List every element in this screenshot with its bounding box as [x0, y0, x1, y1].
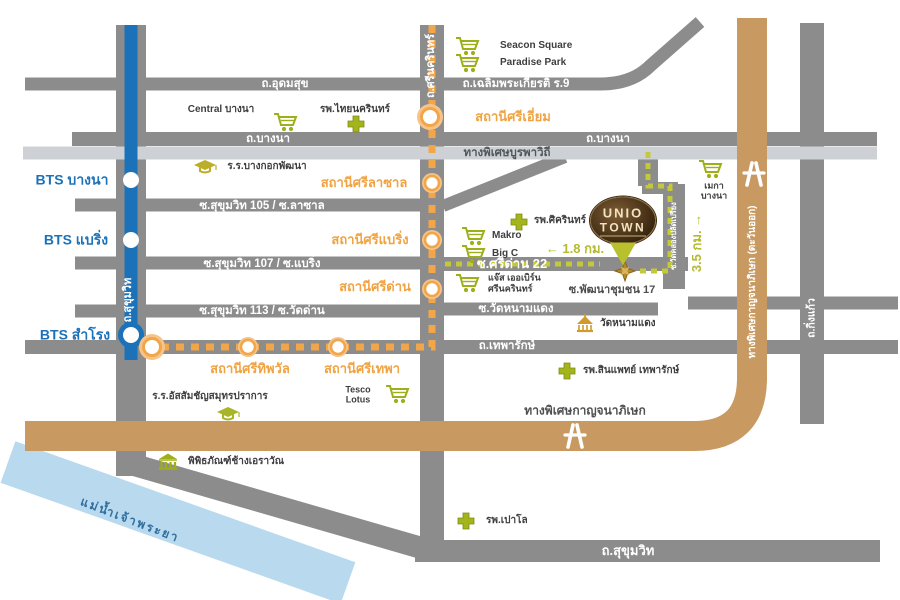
poi-label-assumption: ร.ร.อัสสัมชัญสมุทรปราการ: [152, 392, 267, 403]
road-label-kanchanaphisek: ทางพิเศษกาญจนาภิเษก: [524, 405, 645, 418]
poi-label-mega-line2: บางนา: [701, 191, 727, 200]
road-label-watnamdaeng: ซ.วัดหนามแดง: [479, 303, 554, 315]
road-label-burapha: ทางพิเศษบูรพาวิถี: [464, 147, 551, 159]
project-logo-badge: UNIO TOWN: [590, 197, 656, 245]
poi-label-tesco-line2: Lotus: [346, 395, 371, 404]
poi-label-bigc: Big C: [492, 249, 518, 260]
road-diagonal-lasalle: [443, 157, 565, 206]
road-label-udomsuk: ถ.อุดมสุข: [262, 78, 309, 90]
station-label-srithepha: สถานีศรีเทพา: [324, 362, 400, 376]
road-label-sukhumvit-south: ถ.สุขุมวิท: [602, 544, 655, 558]
station-label-srithipawan: สถานีศรีทิพวัล: [210, 362, 290, 376]
school-cap-icon-assumption: [217, 407, 239, 420]
station-label-sribearing: สถานีศรีแบริ่ง: [331, 233, 408, 247]
bts-station-bearing: [123, 232, 139, 248]
hospital-cross-icon-thainakarin: [348, 116, 364, 132]
station-label-sridan: สถานีศรีด่าน: [339, 280, 411, 294]
project-pin: [610, 243, 636, 266]
poi-label-central: Central บางนา: [188, 105, 255, 116]
poi-label-erawan: พิพิธภัณฑ์ช้างเอราวัณ: [188, 457, 284, 468]
road-label-bangna-east: ถ.บางนา: [586, 133, 630, 145]
road-label-chalermprakiat: ถ.เฉลิมพระเกียรติ ร.9: [463, 78, 570, 90]
temple-icon-watnamdaeng: [577, 314, 593, 331]
road-label-srinakarin: ถ.ศรีนครินทร์: [426, 34, 438, 98]
road-label-sukhumvit107: ซ.สุขุมวิท 107 / ซ.แบริ่ง: [204, 258, 321, 270]
shopping-cart-icon-central: [274, 114, 296, 131]
bts-station-samrong: [123, 327, 139, 343]
shopping-cart-icon-paradise: [456, 55, 478, 72]
project-logo: UNIO TOWN: [590, 197, 656, 266]
road-label-watkhlongpladpriang: ซ.วัดคลองปลัดเปรียง: [670, 202, 678, 270]
bts-station-bangna: [123, 172, 139, 188]
bts-label-samrong: BTS สำโรง: [40, 328, 110, 343]
bts-label-bearing: BTS แบริ่ง: [44, 233, 108, 248]
project-logo-line2: TOWN: [600, 220, 646, 236]
shopping-cart-icon-seacon: [456, 38, 478, 55]
poi-label-jas-line2: ศรีนครินทร์: [488, 284, 532, 293]
poi-label-makro: Makro: [492, 231, 521, 242]
road-network: [0, 0, 900, 600]
road-label-sukhumvit113: ซ.สุขุมวิท 113 / ซ.วัดด่าน: [199, 305, 325, 317]
bts-label-bangna: BTS บางนา: [36, 173, 109, 188]
road-label-kingkaew: ถ.กิ่งแก้ว: [806, 298, 817, 338]
hospital-cross-icon-paolo: [458, 513, 474, 529]
station-label-sriiam: สถานีศรีเอี่ยม: [475, 110, 551, 124]
poi-label-watnamdaeng: วัดหนามแดง: [600, 319, 656, 330]
map-canvas: ถ.อุดมสุข ถ.เฉลิมพระเกียรติ ร.9 ถ.บางนา …: [0, 0, 900, 600]
project-logo-line1: UNIO: [603, 205, 644, 220]
hospital-cross-icon-sinphaet: [559, 363, 575, 379]
poi-label-sikarin: รพ.ศิครินทร์: [534, 216, 586, 227]
poi-label-paolo: รพ.เปาโล: [486, 516, 528, 527]
shopping-cart-icon-makro: [462, 228, 484, 245]
poi-label-seacon: Seacon Square: [500, 41, 572, 52]
hospital-cross-icon-sikarin: [511, 214, 527, 230]
road-label-sukhumvit105: ซ.สุขุมวิท 105 / ซ.ลาซาล: [199, 200, 324, 212]
road-label-kanchanaphisek-vertical: ทางพิเศษกาญจนาภิเษก (ตะวันออก): [748, 205, 759, 358]
shopping-cart-icon-jas: [456, 275, 478, 292]
station-label-srilasalle: สถานีศรีลาซาล: [321, 176, 408, 190]
poi-label-bangkokpatana: ร.ร.บางกอกพัฒนา: [227, 162, 306, 173]
road-label-sukhumvit-vertical: ถ.สุขุมวิท: [123, 278, 135, 323]
poi-label-sinphaet: รพ.สินแพทย์ เทพารักษ์: [583, 366, 679, 377]
road-label-pattanachumchon17: ซ.พัฒนาชุมชน 17: [569, 285, 655, 297]
poi-label-thainakarin: รพ.ไทยนครินทร์: [320, 105, 390, 116]
poi-label-paradise: Paradise Park: [500, 58, 566, 69]
shopping-cart-icon-mega: [699, 161, 721, 178]
road-label-theparak: ถ.เทพารักษ์: [479, 340, 535, 352]
road-label-bangna-west: ถ.บางนา: [246, 133, 290, 145]
school-cap-icon-bangkokpatana: [194, 160, 216, 173]
poi-label-jas-line1: แจ๊ส เออเบิร์น: [488, 273, 541, 282]
shopping-cart-icon-tesco: [386, 386, 408, 403]
distance-label-3-5km: 3.5 กม. →: [690, 214, 704, 272]
